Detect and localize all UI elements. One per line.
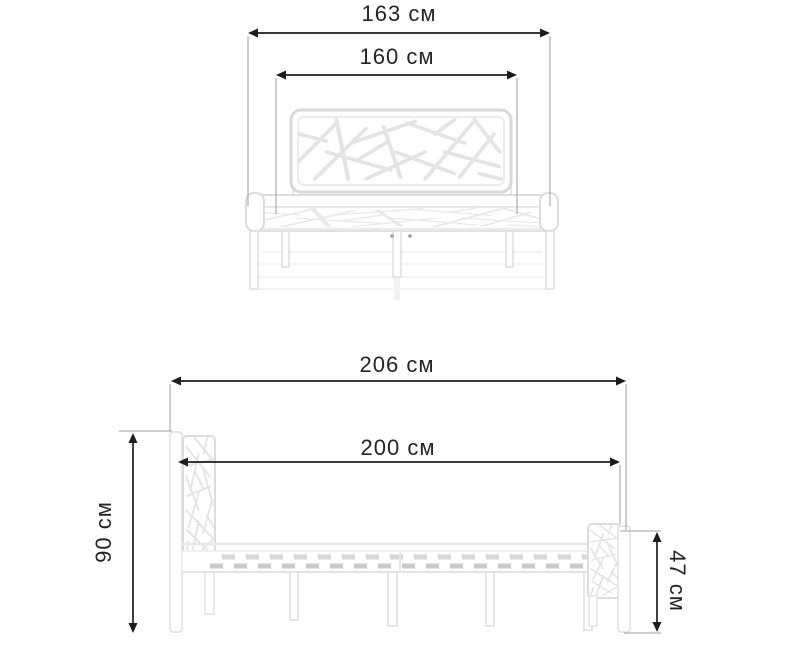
dim-footboard-height [653,532,662,632]
dim-side-outer-length-label: 206 см [317,352,477,378]
dim-front-inner-width [276,71,517,80]
dim-front-outer-width [248,29,550,38]
front-leg [250,231,258,289]
front-side-rail-hook-left [246,193,264,231]
side-footboard-post [618,526,630,632]
front-side-rail-hook-right [540,193,558,231]
dim-footboard-height-label: 47 см [664,521,690,641]
side-leg [486,572,494,626]
front-leg [282,231,289,267]
side-legs [290,572,592,630]
bed-dimensions-diagram: 163 см 160 см 206 см 200 см 90 см 47 см [0,0,800,651]
dim-headboard-height-label: 90 см [91,472,117,592]
side-leg [290,572,298,620]
side-footboard-rear-leg [589,596,597,626]
front-bolt [408,234,412,238]
front-leg [393,231,401,277]
dim-front-outer-width-label: 163 см [319,1,479,27]
dim-front-inner-width-label: 160 см [317,44,477,70]
front-base-top-rail [252,195,552,207]
dim-headboard-height [129,433,138,633]
front-leg [506,231,513,267]
front-bolt [390,234,394,238]
front-legs [250,231,554,289]
side-leg [388,572,397,626]
dim-side-inner-length-label: 200 см [318,435,478,461]
bed-front-view [246,110,558,300]
front-leg [546,231,554,289]
front-center-leg-reflection [394,278,400,300]
